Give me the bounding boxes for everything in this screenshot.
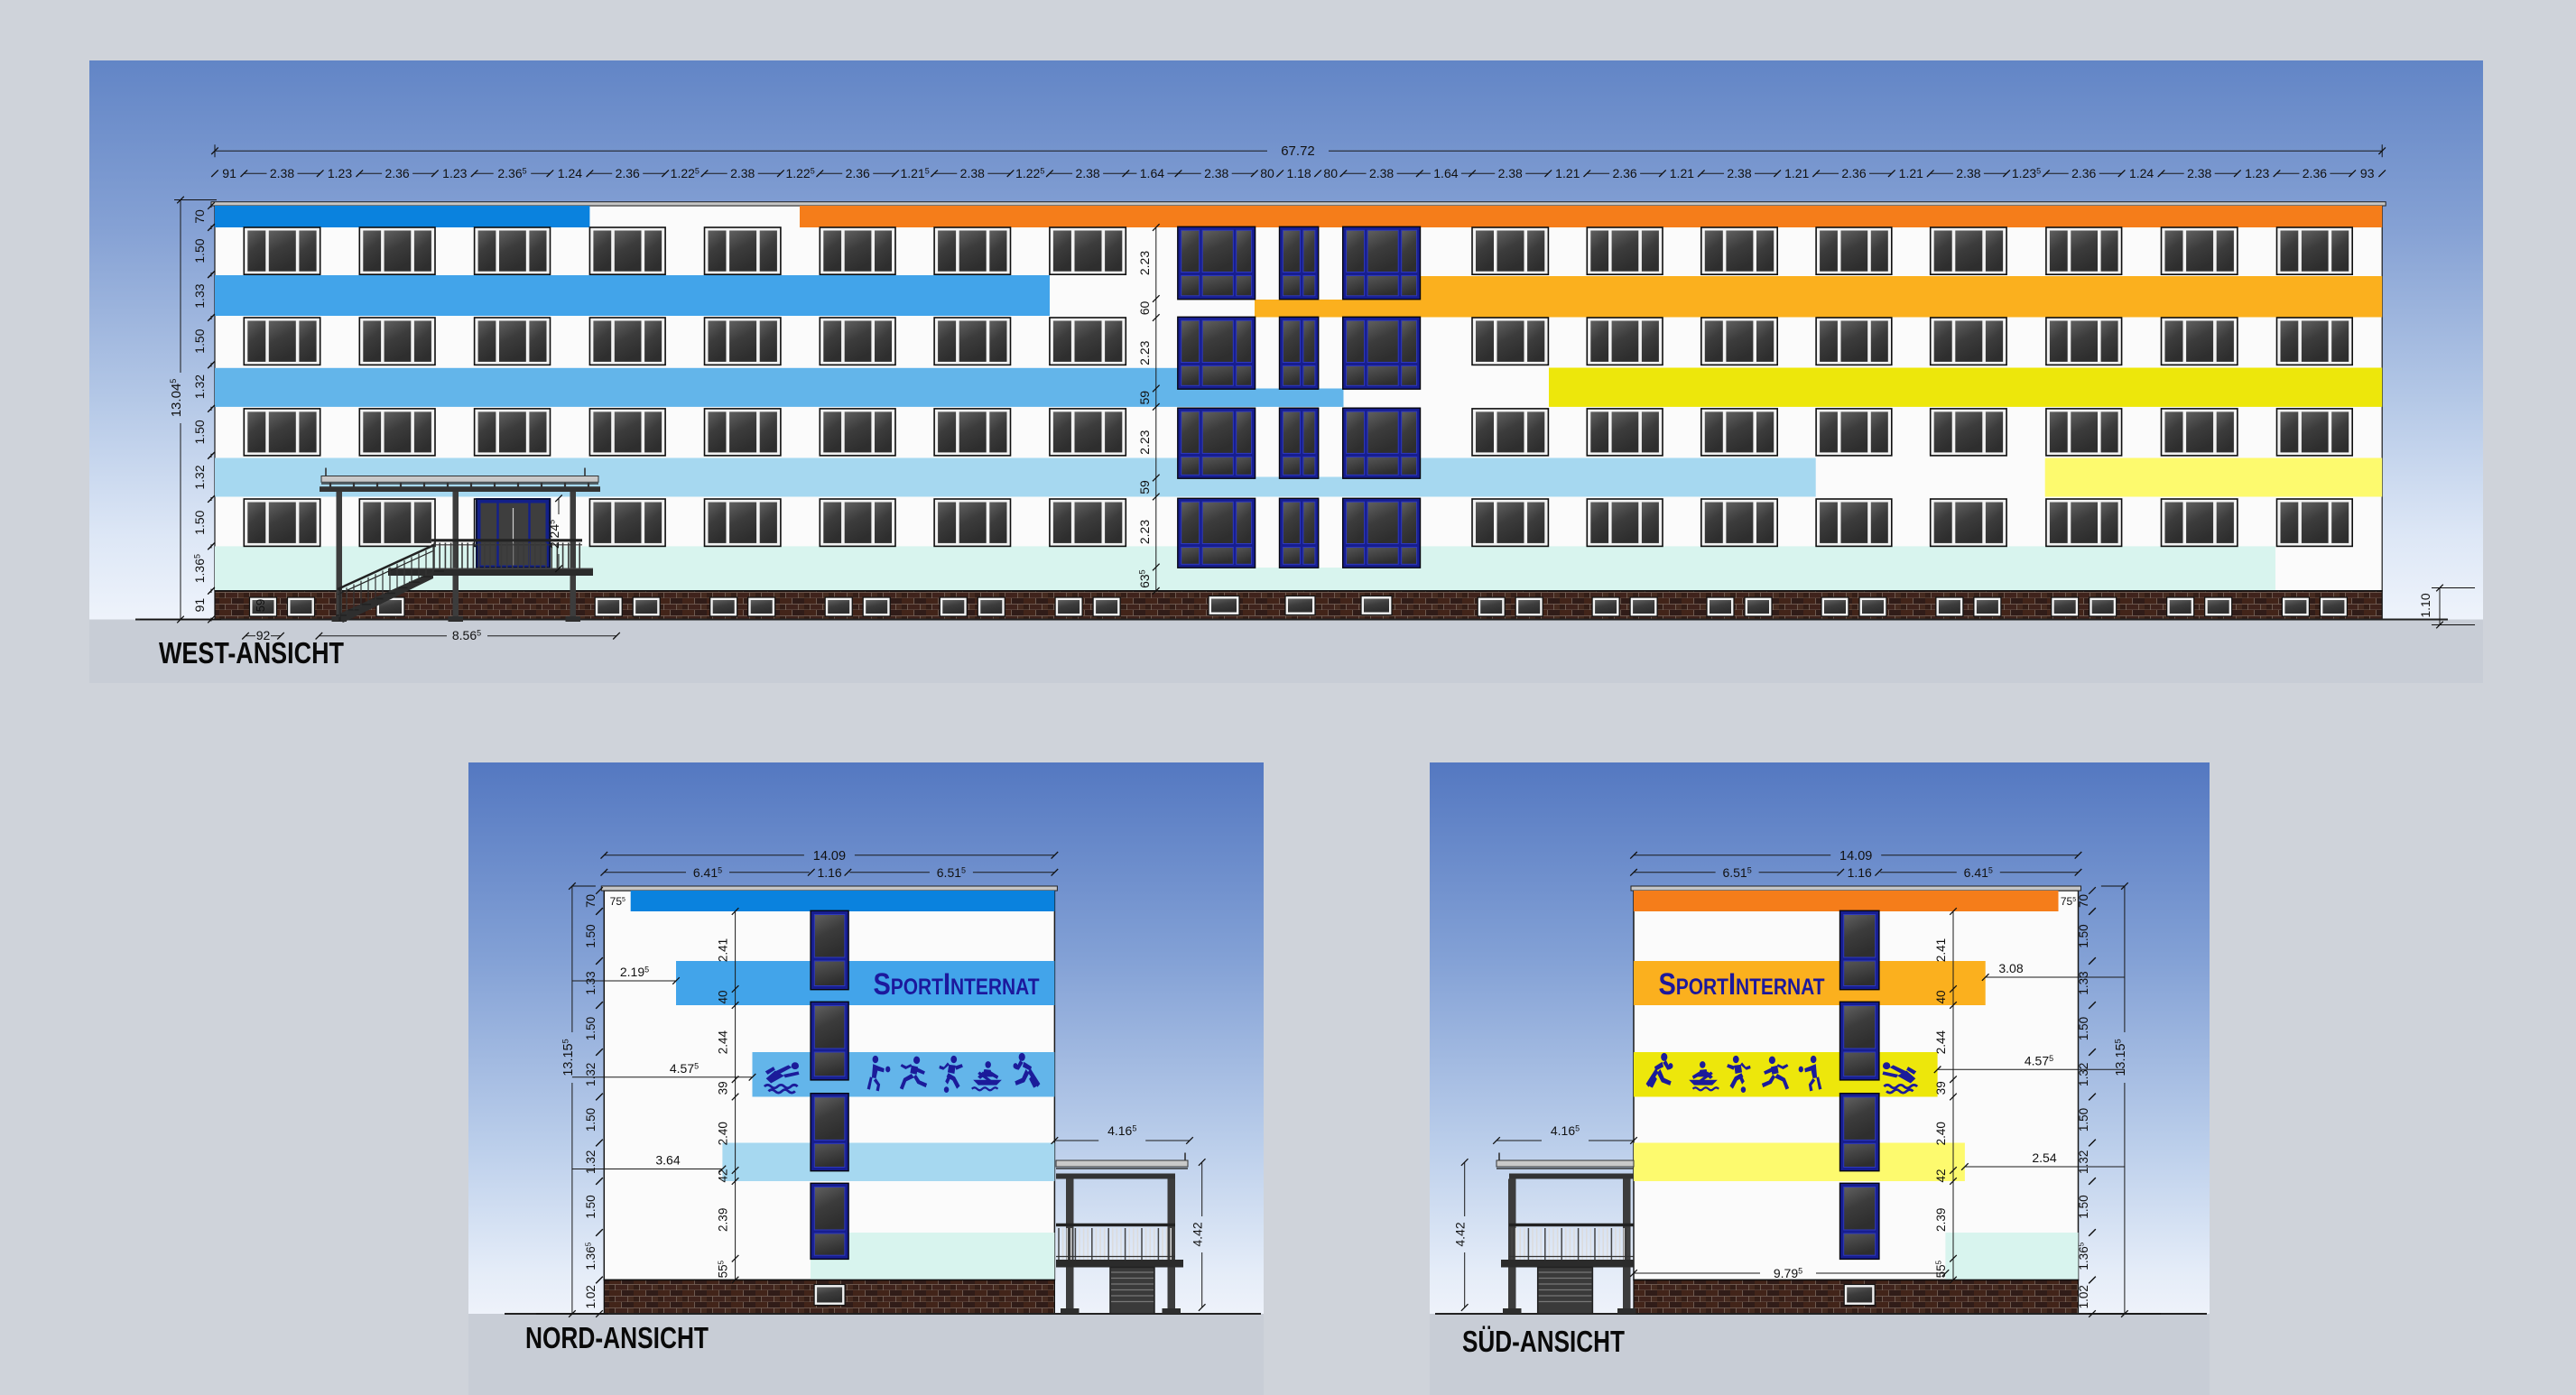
svg-text:4.42: 4.42	[1453, 1222, 1468, 1246]
svg-text:1.23: 1.23	[328, 166, 352, 180]
svg-text:1.50: 1.50	[192, 420, 207, 444]
svg-text:13.045: 13.045	[169, 379, 184, 418]
svg-text:93: 93	[2360, 166, 2375, 180]
svg-text:1.32: 1.32	[2077, 1063, 2090, 1086]
svg-text:2.23: 2.23	[1137, 520, 1152, 544]
svg-text:3.08: 3.08	[1998, 961, 2023, 975]
svg-text:2.38: 2.38	[1369, 166, 1394, 180]
svg-text:59: 59	[254, 599, 267, 612]
svg-text:1.32: 1.32	[584, 1063, 598, 1086]
svg-text:1.24: 1.24	[2129, 166, 2154, 180]
svg-text:2.39: 2.39	[1934, 1208, 1948, 1232]
svg-text:1.16: 1.16	[1848, 865, 1872, 880]
svg-text:1.50: 1.50	[2077, 924, 2090, 947]
svg-text:1.02: 1.02	[2077, 1285, 2090, 1308]
svg-text:70: 70	[2077, 894, 2090, 908]
svg-text:2.38: 2.38	[1075, 166, 1099, 180]
svg-text:2.36: 2.36	[846, 166, 870, 180]
svg-text:42: 42	[717, 1169, 730, 1182]
svg-text:2.44: 2.44	[717, 1030, 730, 1054]
svg-text:1.33: 1.33	[192, 283, 207, 308]
svg-text:91: 91	[192, 598, 207, 613]
svg-text:13.155: 13.155	[561, 1039, 576, 1076]
svg-text:4.42: 4.42	[1191, 1222, 1205, 1246]
svg-text:2.41: 2.41	[1934, 938, 1948, 962]
svg-text:1.24: 1.24	[558, 166, 582, 180]
svg-text:14.09: 14.09	[813, 849, 846, 864]
svg-text:1.32: 1.32	[192, 374, 207, 399]
svg-text:2.23: 2.23	[1137, 340, 1152, 365]
svg-text:42: 42	[1934, 1169, 1948, 1182]
svg-text:1.21: 1.21	[1784, 166, 1809, 180]
svg-text:39: 39	[717, 1081, 730, 1095]
svg-text:1.50: 1.50	[584, 1108, 598, 1132]
svg-text:1.50: 1.50	[192, 238, 207, 263]
svg-text:2.23: 2.23	[1137, 251, 1152, 275]
svg-text:2.36: 2.36	[2071, 166, 2096, 180]
svg-text:2.40: 2.40	[1934, 1122, 1948, 1145]
svg-text:2.38: 2.38	[1956, 166, 1980, 180]
svg-text:39: 39	[1934, 1081, 1948, 1095]
svg-text:2.38: 2.38	[270, 166, 294, 180]
svg-text:2.38: 2.38	[960, 166, 985, 180]
svg-text:2.38: 2.38	[1204, 166, 1228, 180]
svg-text:1.50: 1.50	[2077, 1108, 2090, 1132]
svg-text:2.41: 2.41	[717, 938, 730, 962]
svg-text:1.50: 1.50	[584, 1017, 598, 1040]
svg-text:1.10: 1.10	[2418, 593, 2432, 617]
svg-text:1.50: 1.50	[2077, 1195, 2090, 1218]
svg-text:1.50: 1.50	[2077, 1017, 2090, 1040]
svg-text:1.21: 1.21	[1670, 166, 1694, 180]
svg-text:91: 91	[222, 166, 236, 180]
svg-text:1.23: 1.23	[442, 166, 467, 180]
svg-text:1.64: 1.64	[1140, 166, 1164, 180]
svg-text:1.21: 1.21	[1555, 166, 1580, 180]
svg-text:67.72: 67.72	[1281, 143, 1315, 159]
svg-text:1.18: 1.18	[1286, 166, 1311, 180]
svg-text:2.40: 2.40	[717, 1122, 730, 1145]
svg-text:1.64: 1.64	[1433, 166, 1458, 180]
svg-text:1.16: 1.16	[817, 865, 841, 880]
svg-text:1.50: 1.50	[192, 328, 207, 353]
svg-text:2.36: 2.36	[385, 166, 409, 180]
svg-text:70: 70	[192, 209, 207, 224]
svg-text:40: 40	[1934, 990, 1948, 1003]
svg-text:1.32: 1.32	[2077, 1150, 2090, 1174]
svg-text:2.38: 2.38	[730, 166, 755, 180]
svg-text:WEST-ANSICHT: WEST-ANSICHT	[159, 636, 344, 670]
svg-text:40: 40	[717, 990, 730, 1003]
svg-text:2.54: 2.54	[2032, 1150, 2056, 1165]
svg-text:1.50: 1.50	[584, 1195, 598, 1218]
svg-text:1.50: 1.50	[584, 924, 598, 947]
svg-text:1.50: 1.50	[192, 510, 207, 534]
svg-text:1.32: 1.32	[192, 465, 207, 489]
svg-text:1.33: 1.33	[584, 971, 598, 994]
svg-text:1.23: 1.23	[2245, 166, 2269, 180]
svg-text:2.39: 2.39	[717, 1208, 730, 1232]
svg-text:14.09: 14.09	[1839, 849, 1872, 864]
svg-text:1.02: 1.02	[584, 1285, 598, 1308]
svg-text:2.44: 2.44	[1934, 1030, 1948, 1054]
svg-text:13.155: 13.155	[2113, 1039, 2128, 1076]
svg-text:2.36: 2.36	[1612, 166, 1636, 180]
svg-text:2.23: 2.23	[1137, 430, 1152, 454]
svg-text:1.33: 1.33	[2077, 971, 2090, 994]
svg-text:3.64: 3.64	[655, 1153, 680, 1168]
svg-text:80: 80	[1323, 166, 1338, 180]
svg-text:SÜD-ANSICHT: SÜD-ANSICHT	[1462, 1325, 1625, 1358]
svg-text:59: 59	[1137, 391, 1152, 405]
svg-text:2.36: 2.36	[616, 166, 640, 180]
svg-text:2.36: 2.36	[1841, 166, 1866, 180]
svg-text:NORD-ANSICHT: NORD-ANSICHT	[525, 1321, 709, 1354]
svg-text:60: 60	[1137, 301, 1152, 316]
svg-text:1.32: 1.32	[584, 1150, 598, 1174]
svg-text:70: 70	[584, 894, 598, 908]
svg-text:59: 59	[1137, 480, 1152, 494]
svg-text:2.38: 2.38	[1498, 166, 1523, 180]
svg-text:80: 80	[1260, 166, 1274, 180]
svg-text:2.38: 2.38	[1727, 166, 1751, 180]
svg-text:1.21: 1.21	[1899, 166, 1923, 180]
svg-text:2.38: 2.38	[2187, 166, 2211, 180]
svg-text:2.36: 2.36	[2303, 166, 2327, 180]
